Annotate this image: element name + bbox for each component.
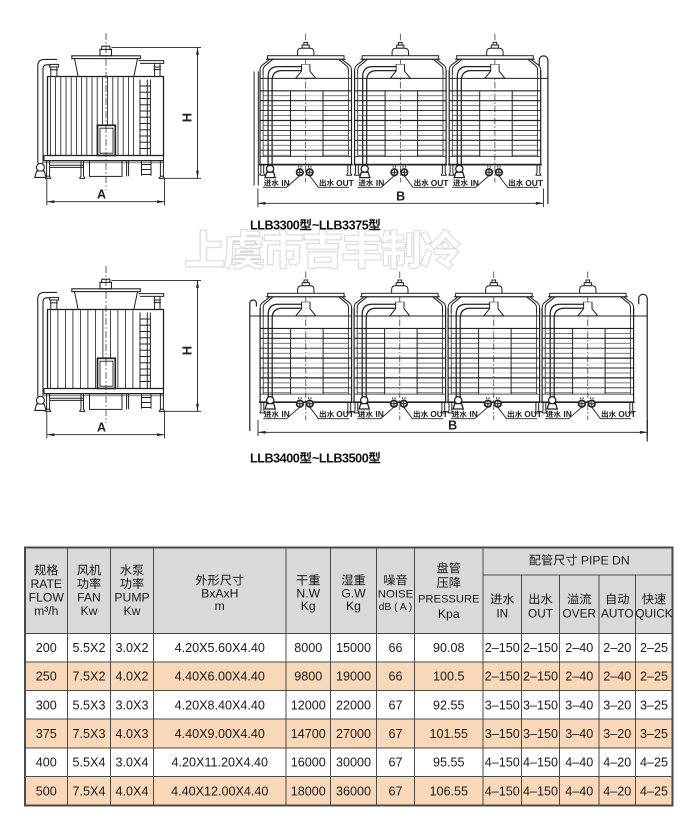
svg-text:30000: 30000 [336,756,371,770]
svg-text:B: B [396,190,405,204]
svg-text:12000: 12000 [291,698,326,712]
svg-text:2–150: 2–150 [485,641,520,655]
svg-text:A: A [97,421,106,435]
svg-text:200: 200 [36,641,57,655]
svg-text:3–20: 3–20 [603,727,631,741]
svg-text:3–20: 3–20 [603,698,631,712]
svg-text:8000: 8000 [294,641,322,655]
svg-text:36000: 36000 [336,784,371,798]
svg-text:4–20: 4–20 [603,756,631,770]
svg-text:PIPE DN: PIPE DN [581,554,630,568]
svg-text:375: 375 [36,727,57,741]
svg-text:m: m [215,599,225,613]
svg-text:4–150: 4–150 [523,756,558,770]
svg-text:Kg: Kg [346,599,361,613]
svg-text:2–25: 2–25 [640,670,668,684]
svg-text:5.5X4: 5.5X4 [73,756,106,770]
svg-text:4–25: 4–25 [640,784,668,798]
svg-text:Kg: Kg [301,599,316,613]
svg-text:500: 500 [36,784,57,798]
svg-text:4–20: 4–20 [603,784,631,798]
svg-text:2–40: 2–40 [565,641,593,655]
svg-text:27000: 27000 [336,727,371,741]
svg-text:4–150: 4–150 [523,784,558,798]
svg-text:4.40X6.00X4.40: 4.40X6.00X4.40 [175,670,265,684]
svg-text:2–150: 2–150 [485,670,520,684]
svg-text:7.5X3: 7.5X3 [73,727,106,741]
svg-text:67: 67 [388,784,402,798]
svg-text:Kpa: Kpa [438,607,460,621]
svg-text:90.08: 90.08 [433,641,465,655]
svg-text:4–25: 4–25 [640,756,668,770]
svg-text:95.55: 95.55 [433,756,465,770]
svg-text:3–40: 3–40 [565,727,593,741]
svg-text:2–40: 2–40 [565,670,593,684]
svg-text:3–25: 3–25 [640,727,668,741]
svg-text:106.55: 106.55 [429,784,468,798]
svg-text:FAN: FAN [77,591,101,605]
svg-text:7.5X2: 7.5X2 [73,670,106,684]
svg-text:4.20X11.20X4.40: 4.20X11.20X4.40 [172,756,268,770]
svg-text:4.20X8.40X4.40: 4.20X8.40X4.40 [175,698,265,712]
svg-text:4.0X2: 4.0X2 [116,670,149,684]
svg-text:4.40X12.00X4.40: 4.40X12.00X4.40 [171,784,268,798]
svg-text:A: A [97,188,106,202]
svg-text:92.55: 92.55 [433,698,465,712]
svg-text:4–40: 4–40 [565,756,593,770]
svg-text:3–25: 3–25 [640,698,668,712]
svg-text:3.0X2: 3.0X2 [116,641,149,655]
svg-text:3–150: 3–150 [485,698,520,712]
svg-text:3–40: 3–40 [565,698,593,712]
svg-text:15000: 15000 [336,641,371,655]
svg-text:4–40: 4–40 [565,784,593,798]
svg-text:3–150: 3–150 [523,727,558,741]
svg-text:IN: IN [496,607,508,621]
svg-text:LLB3400: LLB3400 [250,452,300,466]
svg-text:4–150: 4–150 [485,784,520,798]
svg-text:100.5: 100.5 [433,670,465,684]
svg-text:300: 300 [36,698,57,712]
svg-text:AUTO: AUTO [601,607,634,621]
svg-text:18000: 18000 [291,784,326,798]
svg-text:67: 67 [388,727,402,741]
svg-text:PUMP: PUMP [114,591,149,605]
svg-text:3–150: 3–150 [485,727,520,741]
svg-text:67: 67 [388,756,402,770]
svg-text:4.40X9.00X4.40: 4.40X9.00X4.40 [175,727,265,741]
svg-text:5.5X2: 5.5X2 [73,641,106,655]
svg-text:4.0X3: 4.0X3 [116,727,149,741]
svg-text:OUT: OUT [528,607,553,621]
svg-text:7.5X4: 7.5X4 [73,784,106,798]
svg-text:QUICK: QUICK [635,607,672,621]
svg-text:H: H [180,113,195,122]
svg-text:4.0X4: 4.0X4 [116,784,149,798]
svg-text:67: 67 [388,698,402,712]
svg-text:3.0X3: 3.0X3 [116,698,149,712]
svg-text:LLB3300: LLB3300 [250,219,300,233]
svg-text:m³/h: m³/h [34,604,58,618]
svg-text:19000: 19000 [336,670,371,684]
svg-text:RATE: RATE [30,577,62,591]
svg-text:66: 66 [388,641,402,655]
svg-text:OVER: OVER [563,607,596,621]
svg-text:2–20: 2–20 [603,641,631,655]
svg-text:2–150: 2–150 [523,641,558,655]
svg-text:14700: 14700 [291,727,326,741]
svg-text:Kw: Kw [124,604,141,618]
svg-text:3.0X4: 3.0X4 [116,756,149,770]
svg-text:B: B [448,419,457,433]
svg-text:66: 66 [388,670,402,684]
svg-text:dB ( A ): dB ( A ) [379,602,412,613]
svg-text:NOISE: NOISE [378,589,414,601]
svg-text:400: 400 [36,756,57,770]
svg-text:250: 250 [36,670,57,684]
svg-text:101.55: 101.55 [429,727,468,741]
svg-text:2–40: 2–40 [603,670,631,684]
svg-text:Kw: Kw [81,604,98,618]
svg-text:2–150: 2–150 [523,670,558,684]
svg-text:5.5X3: 5.5X3 [73,698,106,712]
svg-text:4–150: 4–150 [485,756,520,770]
svg-text:3–150: 3–150 [523,698,558,712]
svg-text:~LLB3375: ~LLB3375 [312,219,369,233]
svg-text:16000: 16000 [291,756,326,770]
svg-text:9800: 9800 [294,670,322,684]
svg-text:~LLB3500: ~LLB3500 [312,452,369,466]
svg-text:FLOW: FLOW [29,591,65,605]
svg-text:2–25: 2–25 [640,641,668,655]
svg-text:PRESSURE: PRESSURE [418,594,480,606]
svg-text:22000: 22000 [336,698,371,712]
svg-text:4.20X5.60X4.40: 4.20X5.60X4.40 [175,641,265,655]
svg-text:H: H [180,346,195,355]
